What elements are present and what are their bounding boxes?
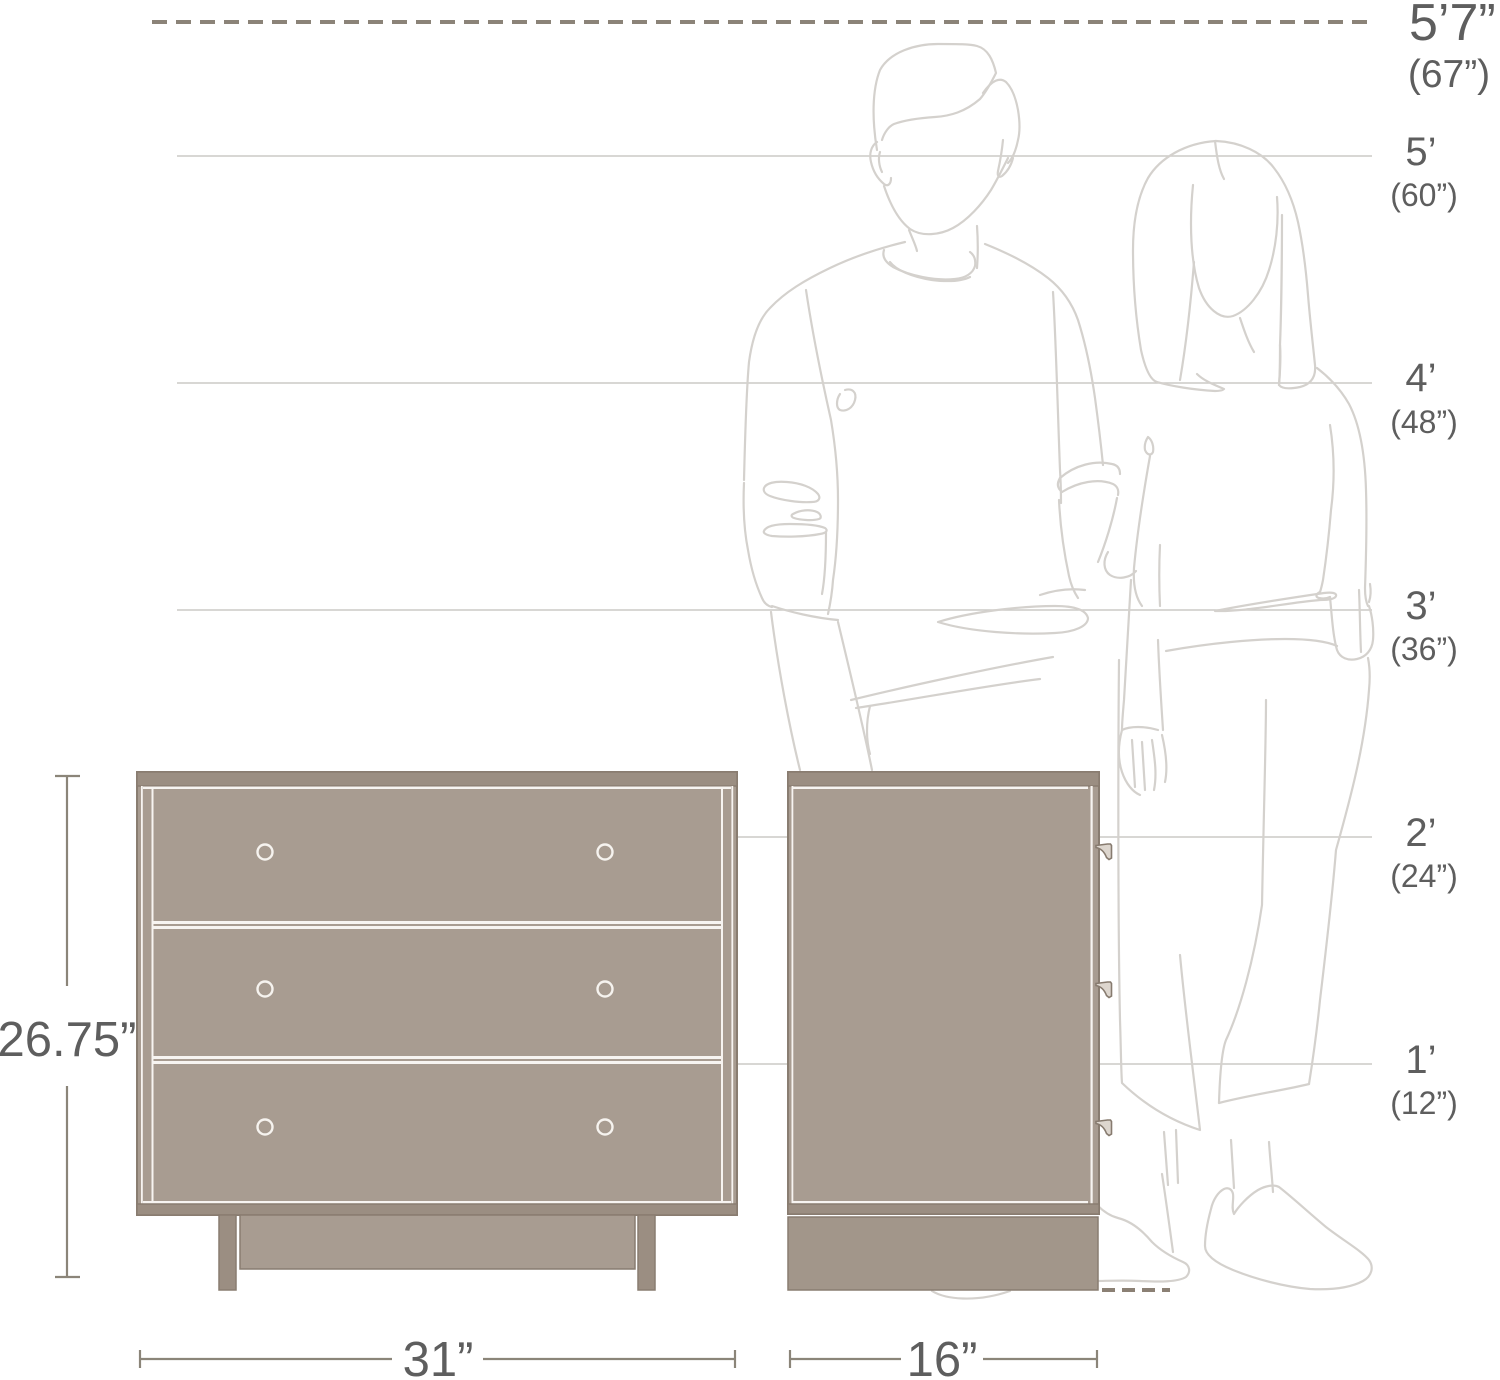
svg-text:(60”): (60”) — [1390, 177, 1458, 213]
svg-text:26.75”: 26.75” — [0, 1013, 136, 1067]
svg-text:5’: 5’ — [1405, 130, 1436, 174]
svg-text:2’: 2’ — [1405, 811, 1436, 855]
svg-text:(67”): (67”) — [1408, 53, 1490, 96]
svg-text:(48”): (48”) — [1390, 404, 1458, 440]
svg-text:16”: 16” — [907, 1333, 978, 1380]
svg-text:(36”): (36”) — [1390, 631, 1458, 667]
svg-text:3’: 3’ — [1405, 584, 1436, 628]
svg-text:5’7”: 5’7” — [1409, 0, 1496, 52]
svg-text:4’: 4’ — [1405, 356, 1436, 400]
svg-text:(12”): (12”) — [1390, 1085, 1458, 1121]
svg-text:(24”): (24”) — [1390, 858, 1458, 894]
svg-text:1’: 1’ — [1405, 1038, 1436, 1082]
svg-text:31”: 31” — [403, 1333, 474, 1380]
